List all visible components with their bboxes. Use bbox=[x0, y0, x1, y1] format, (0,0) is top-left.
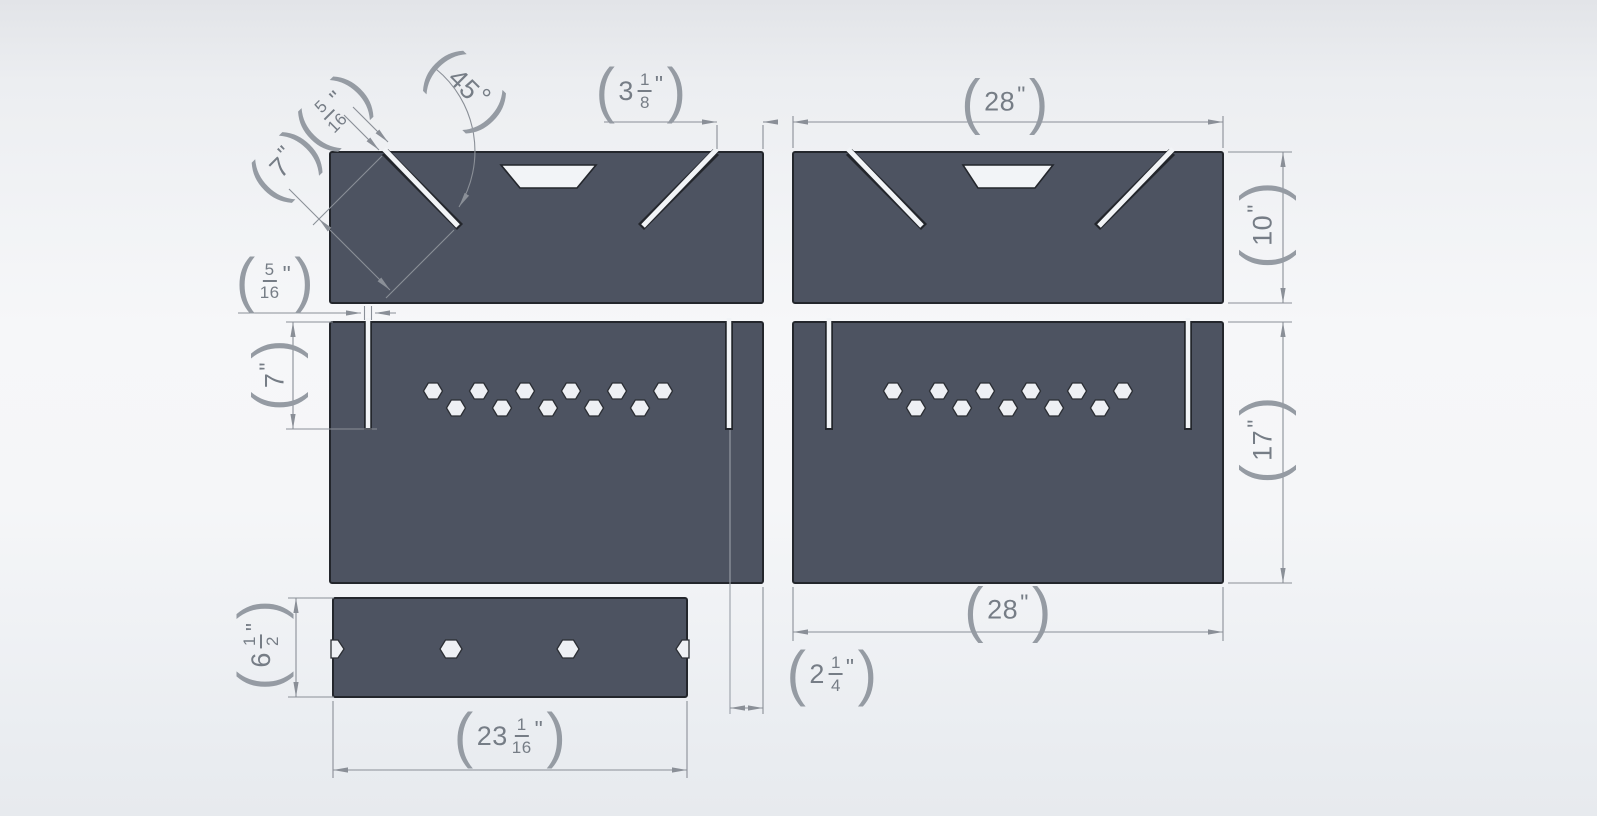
cad-viewport[interactable]: ( 516 " ) ( 45 ° ) ( 7 " ) ( 3 18 " ) ( … bbox=[0, 0, 1597, 816]
panel-top-right[interactable] bbox=[793, 149, 1223, 303]
dim-top-panel-height-lines bbox=[1228, 152, 1292, 303]
panel-side-left[interactable] bbox=[330, 318, 763, 583]
dim-mid-panel-width-lines bbox=[793, 587, 1223, 641]
dim-brace-height-lines bbox=[288, 598, 334, 697]
drawing-canvas[interactable] bbox=[0, 0, 1597, 816]
panel-top-left[interactable] bbox=[330, 149, 763, 303]
dim-top-slot-width-lines bbox=[344, 107, 388, 150]
dim-top-panel-width-lines bbox=[793, 116, 1223, 148]
dim-brace-width-lines bbox=[333, 701, 687, 778]
dim-top-slot-edge-offset-lines bbox=[604, 122, 778, 149]
dim-mid-slot-width-lines bbox=[238, 306, 396, 320]
brace-panel[interactable] bbox=[331, 598, 689, 697]
panel-side-right[interactable] bbox=[793, 318, 1223, 583]
dim-mid-panel-height-lines bbox=[1228, 322, 1292, 583]
